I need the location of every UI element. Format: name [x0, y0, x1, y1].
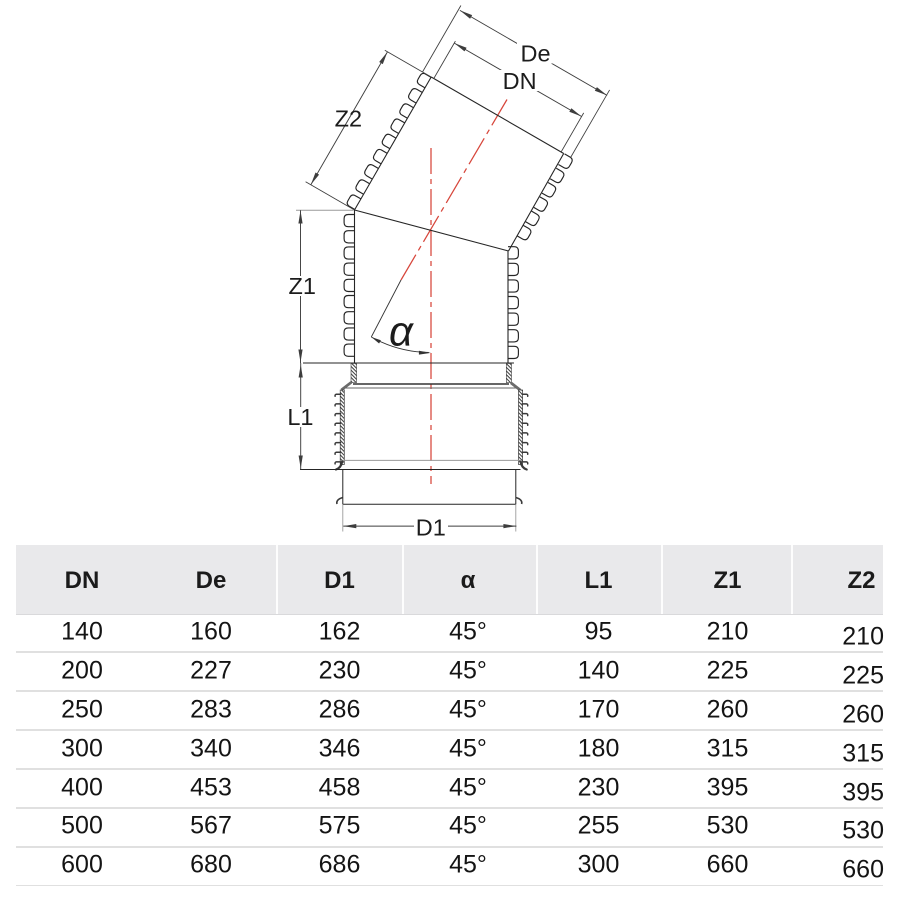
svg-text:α: α [389, 308, 414, 355]
svg-text:Z1: Z1 [288, 273, 315, 299]
svg-text:D1: D1 [416, 515, 446, 541]
svg-text:Z2: Z2 [335, 106, 362, 132]
svg-text:De: De [520, 41, 550, 67]
svg-text:L1: L1 [287, 404, 313, 430]
svg-text:DN: DN [503, 68, 537, 94]
